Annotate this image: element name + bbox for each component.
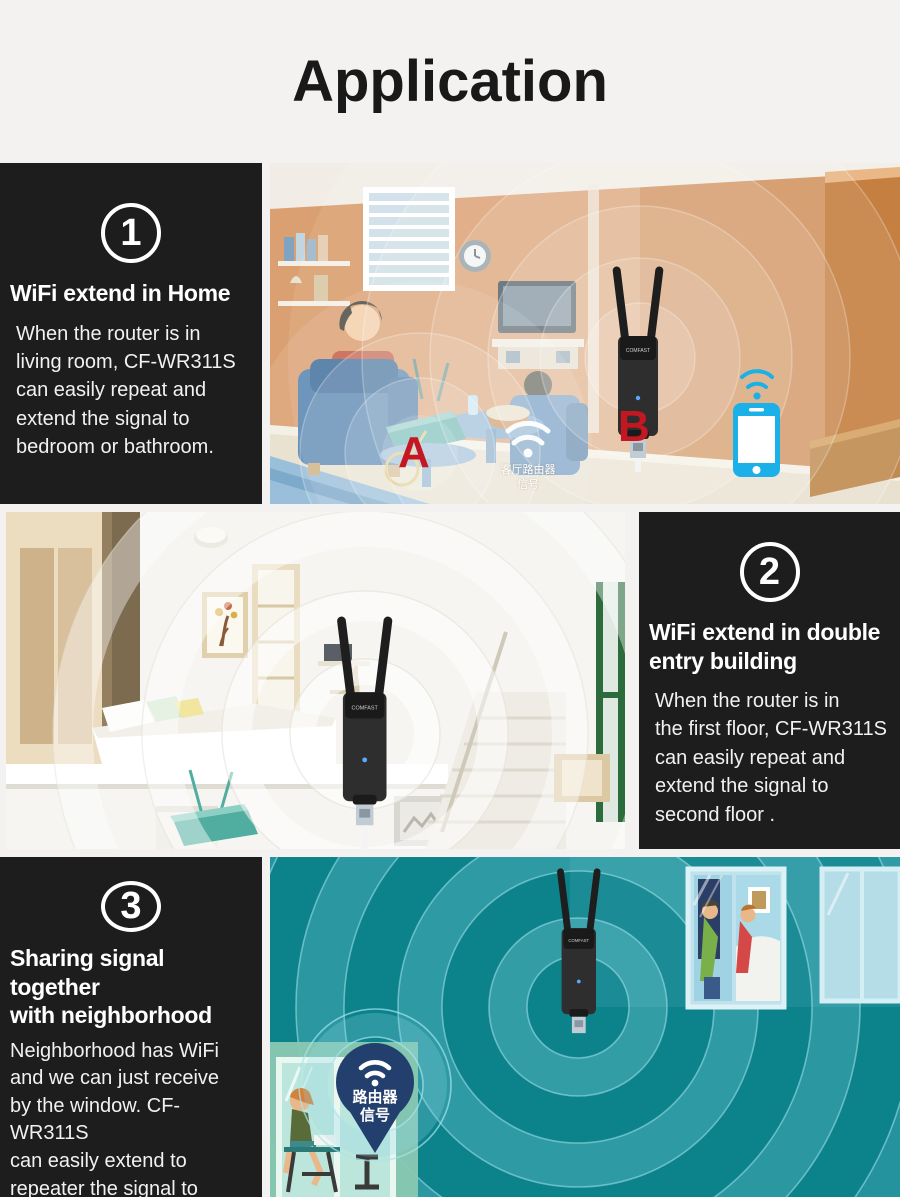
section2-heading: WiFi extend in double entry building	[639, 618, 900, 675]
router-signal-caption: 客厅路由器 信号	[473, 463, 583, 493]
section3-body: Neighborhood has WiFi and we can just re…	[0, 1038, 262, 1197]
section2-text-panel: 2 WiFi extend in double entry building W…	[639, 512, 900, 849]
label-router-a: A	[398, 431, 430, 475]
neighbor-window-couple	[688, 869, 784, 1007]
section2-number-badge: 2	[740, 542, 800, 602]
loft-room-illustration: COMFAST	[6, 512, 625, 849]
wifi-waves-repeater	[288, 163, 900, 504]
section1-text-panel: 1 WiFi extend in Home When the router is…	[0, 163, 262, 504]
section1-heading: WiFi extend in Home	[0, 279, 262, 308]
section2-body: When the router is in the first floor, C…	[639, 687, 900, 829]
neighborhood-illustration: COMFAST 路由器 信号	[270, 857, 900, 1197]
neighbor-window-empty	[822, 869, 900, 1001]
section1-number-badge: 1	[101, 203, 161, 263]
section-wifi-extend-building: COMFAST 2 WiFi extend in double entry bu…	[0, 512, 900, 849]
section3-number-badge: 3	[101, 881, 161, 932]
application-page: Application 1 WiFi extend in Home When t…	[0, 0, 900, 1197]
device-brand-text: COMFAST	[626, 348, 650, 354]
label-repeater-b: B	[618, 405, 650, 449]
section-sharing-neighborhood: 3 Sharing signal together with neighborh…	[0, 857, 900, 1197]
device-brand-text: COMFAST	[568, 938, 589, 943]
page-title: Application	[292, 48, 608, 115]
page-header: Application	[0, 0, 900, 163]
pin-caption: 路由器 信号	[330, 1089, 420, 1125]
living-room-illustration: COMFAST	[270, 163, 900, 504]
section1-body: When the router is in living room, CF-WR…	[0, 320, 262, 462]
section3-text-panel: 3 Sharing signal together with neighborh…	[0, 857, 262, 1197]
device-brand-text: COMFAST	[352, 706, 379, 712]
section-wifi-extend-home: 1 WiFi extend in Home When the router is…	[0, 163, 900, 504]
section3-heading: Sharing signal together with neighborhoo…	[0, 944, 262, 1030]
